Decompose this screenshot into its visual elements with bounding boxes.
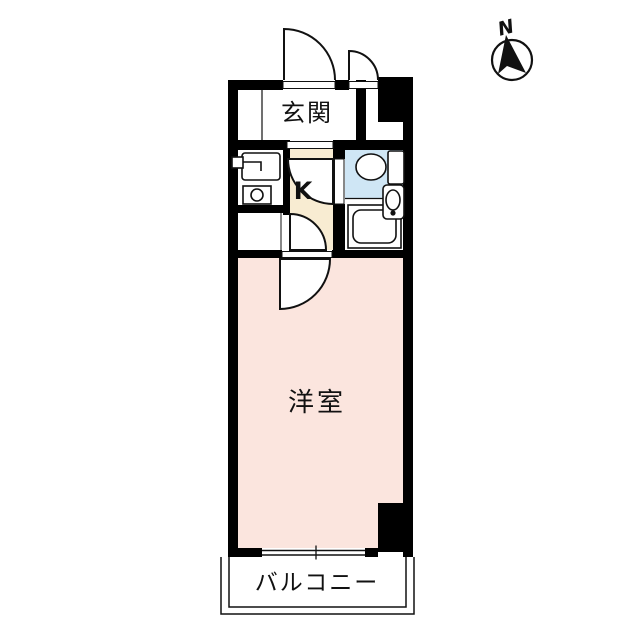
wash-basin-bowl-icon <box>386 190 400 210</box>
wall-bathroom-left-lower <box>333 204 345 252</box>
wall-top-mid-segment <box>335 80 349 90</box>
entrance-small-door-swing <box>349 51 378 80</box>
wall-bottom-left <box>228 548 262 557</box>
wall-bottom-right <box>365 548 378 557</box>
wall-mainroom-top-right <box>332 250 413 258</box>
kitchen-fixtures <box>232 153 280 204</box>
balcony-label: バルコニー <box>255 570 380 596</box>
wall-kitchen-left <box>283 140 290 215</box>
wall-below-genkan-left <box>228 140 287 150</box>
entrance-door-swing <box>284 29 335 80</box>
wall-top-left-segment <box>228 80 283 90</box>
pillar-top-right <box>378 77 413 122</box>
threshold-entrance-main <box>283 82 335 89</box>
wall-above-storage <box>228 205 290 213</box>
toilet-bowl-icon <box>356 154 386 180</box>
genkan-label: 玄関 <box>281 99 333 127</box>
kitchen-faucet-base-icon <box>232 157 243 168</box>
floor-plan-drawing: N 玄関 K 洋室 バルコニー <box>0 0 640 640</box>
compass: N <box>492 15 532 80</box>
western-room-label: 洋室 <box>288 388 346 418</box>
wall-outer-left <box>228 80 238 557</box>
wall-bathroom-left-upper <box>333 143 345 159</box>
pillar-bottom-right <box>378 503 413 552</box>
wall-mainroom-top-left <box>228 250 282 258</box>
floor-plan-page: N 玄関 K 洋室 バルコニー <box>0 0 640 640</box>
kitchen-burner-icon <box>251 189 263 201</box>
threshold-entrance-small <box>349 82 378 89</box>
threshold-genkan-kitchen <box>287 142 333 149</box>
wash-basin-drain-icon <box>391 211 395 215</box>
threshold-kitchen-mainroom <box>282 252 332 258</box>
toilet-tank-icon <box>388 151 404 184</box>
compass-north-label: N <box>495 15 516 40</box>
kitchen-label: K <box>294 177 314 205</box>
threshold-bathroom-door <box>335 159 345 204</box>
wall-genkan-right <box>356 80 366 143</box>
